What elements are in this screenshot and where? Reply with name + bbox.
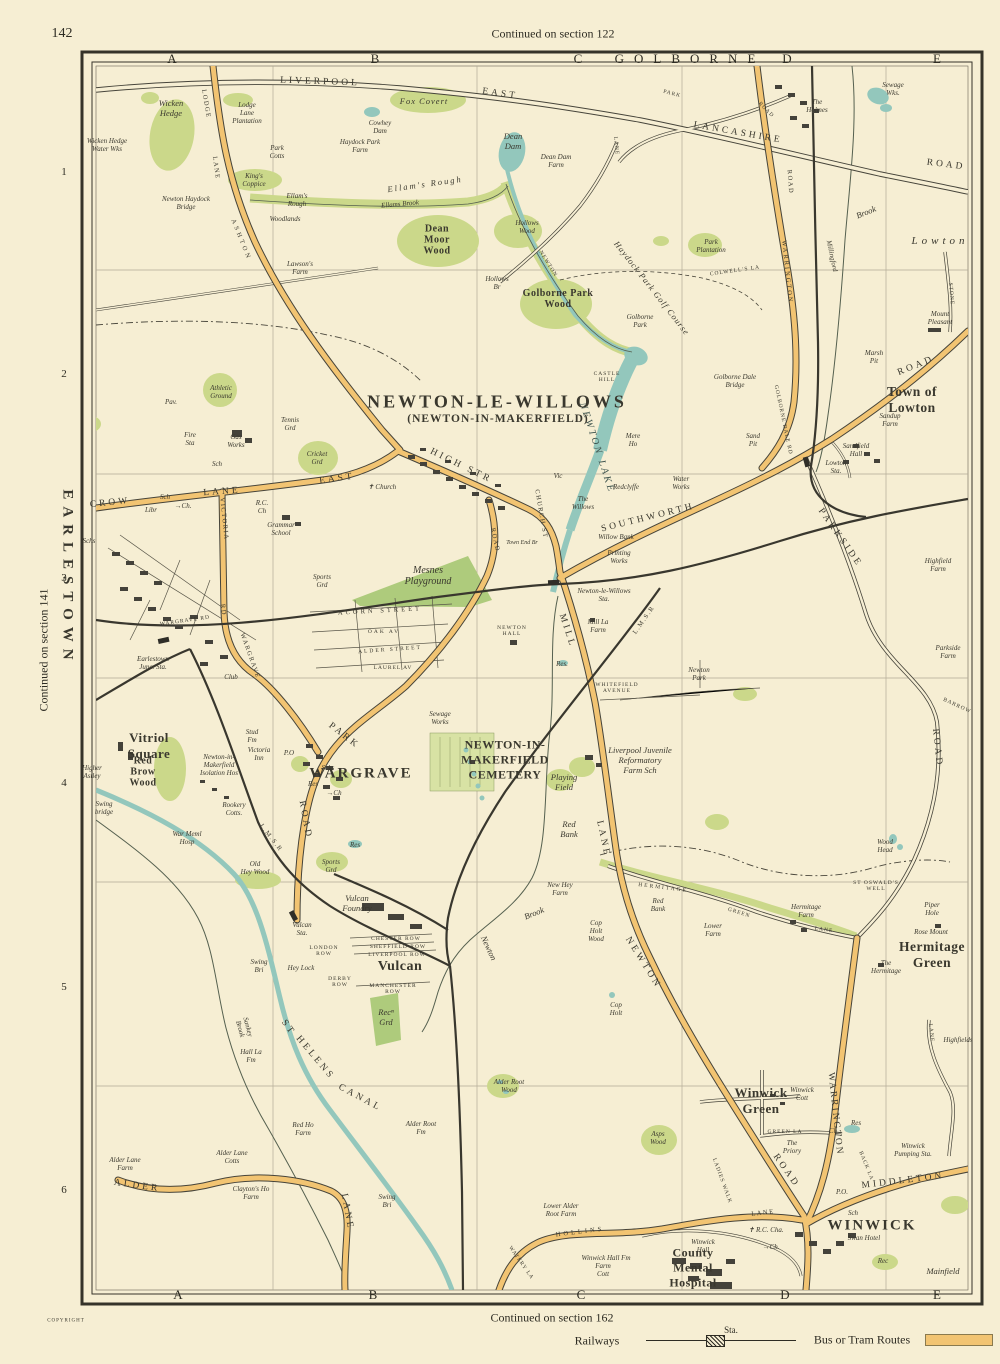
- map-graphic: [0, 0, 1000, 1364]
- recreation-grounds: [352, 556, 492, 1046]
- legend-bus-label: Bus or Tram Routes: [814, 1333, 910, 1348]
- newton-lake: [505, 160, 636, 592]
- map-page: 142Continued on section 122Continued on …: [0, 0, 1000, 1364]
- legend-station-label: Sta.: [724, 1325, 738, 1335]
- legend-bus-swatch: [925, 1334, 993, 1346]
- legend-railways-label: Railways: [575, 1334, 620, 1349]
- cemetery-ground: [430, 733, 494, 791]
- legend-station-symbol: [706, 1335, 725, 1347]
- stations: [158, 456, 810, 921]
